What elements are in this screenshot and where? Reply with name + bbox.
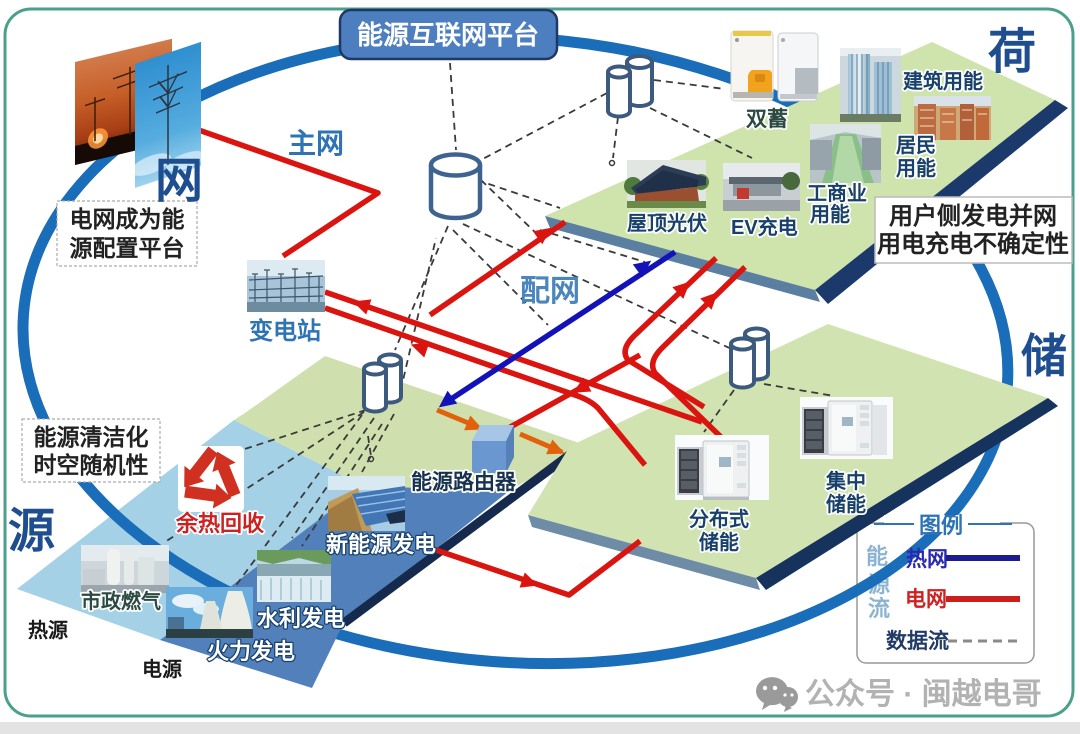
- svg-text:用电充电不确定性: 用电充电不确定性: [877, 230, 1069, 258]
- svg-text:用户侧发电并网: 用户侧发电并网: [889, 202, 1057, 230]
- svg-text:新能源发电: 新能源发电: [326, 532, 436, 557]
- svg-text:能: 能: [866, 544, 888, 569]
- svg-text:源配置平台: 源配置平台: [70, 235, 185, 261]
- svg-text:能源清洁化: 能源清洁化: [34, 424, 149, 450]
- svg-text:公众号 · 闽越电哥: 公众号 · 闽越电哥: [805, 678, 1042, 711]
- svg-text:主网: 主网: [288, 128, 344, 159]
- svg-text:网: 网: [155, 155, 203, 208]
- svg-text:用能: 用能: [810, 202, 850, 226]
- svg-text:工商业: 工商业: [807, 181, 867, 205]
- svg-text:分布式: 分布式: [689, 507, 749, 531]
- svg-text:源: 源: [8, 504, 55, 557]
- svg-text:EV充电: EV充电: [731, 215, 798, 239]
- svg-text:双蓄: 双蓄: [746, 108, 788, 131]
- svg-text:屋顶光伏: 屋顶光伏: [627, 211, 707, 235]
- svg-text:储能: 储能: [699, 530, 739, 554]
- svg-text:图例: 图例: [919, 513, 963, 538]
- svg-text:热网: 热网: [906, 547, 948, 571]
- svg-text:荷: 荷: [988, 26, 1036, 79]
- svg-text:电网成为能: 电网成为能: [70, 206, 185, 232]
- svg-text:储: 储: [1021, 330, 1067, 382]
- svg-text:水利发电: 水利发电: [257, 606, 345, 631]
- svg-text:火力发电: 火力发电: [207, 639, 295, 664]
- svg-text:配网: 配网: [520, 275, 580, 308]
- svg-text:数据流: 数据流: [886, 629, 949, 653]
- svg-text:居民: 居民: [896, 135, 936, 157]
- svg-text:变电站: 变电站: [249, 317, 321, 345]
- svg-text:电网: 电网: [905, 588, 947, 611]
- svg-text:电源: 电源: [142, 658, 182, 681]
- svg-text:集中: 集中: [825, 469, 866, 493]
- svg-text:建筑用能: 建筑用能: [903, 69, 983, 93]
- svg-text:能源路由器: 能源路由器: [411, 470, 517, 494]
- svg-text:储能: 储能: [826, 492, 866, 516]
- svg-text:热源: 热源: [28, 619, 68, 642]
- svg-text:流: 流: [868, 596, 890, 621]
- svg-text:时空随机性: 时空随机性: [34, 452, 149, 478]
- svg-text:用能: 用能: [896, 156, 936, 180]
- svg-text:余热回收: 余热回收: [175, 511, 264, 536]
- svg-text:能源互联网平台: 能源互联网平台: [357, 20, 539, 50]
- svg-text:市政燃气: 市政燃气: [81, 589, 161, 613]
